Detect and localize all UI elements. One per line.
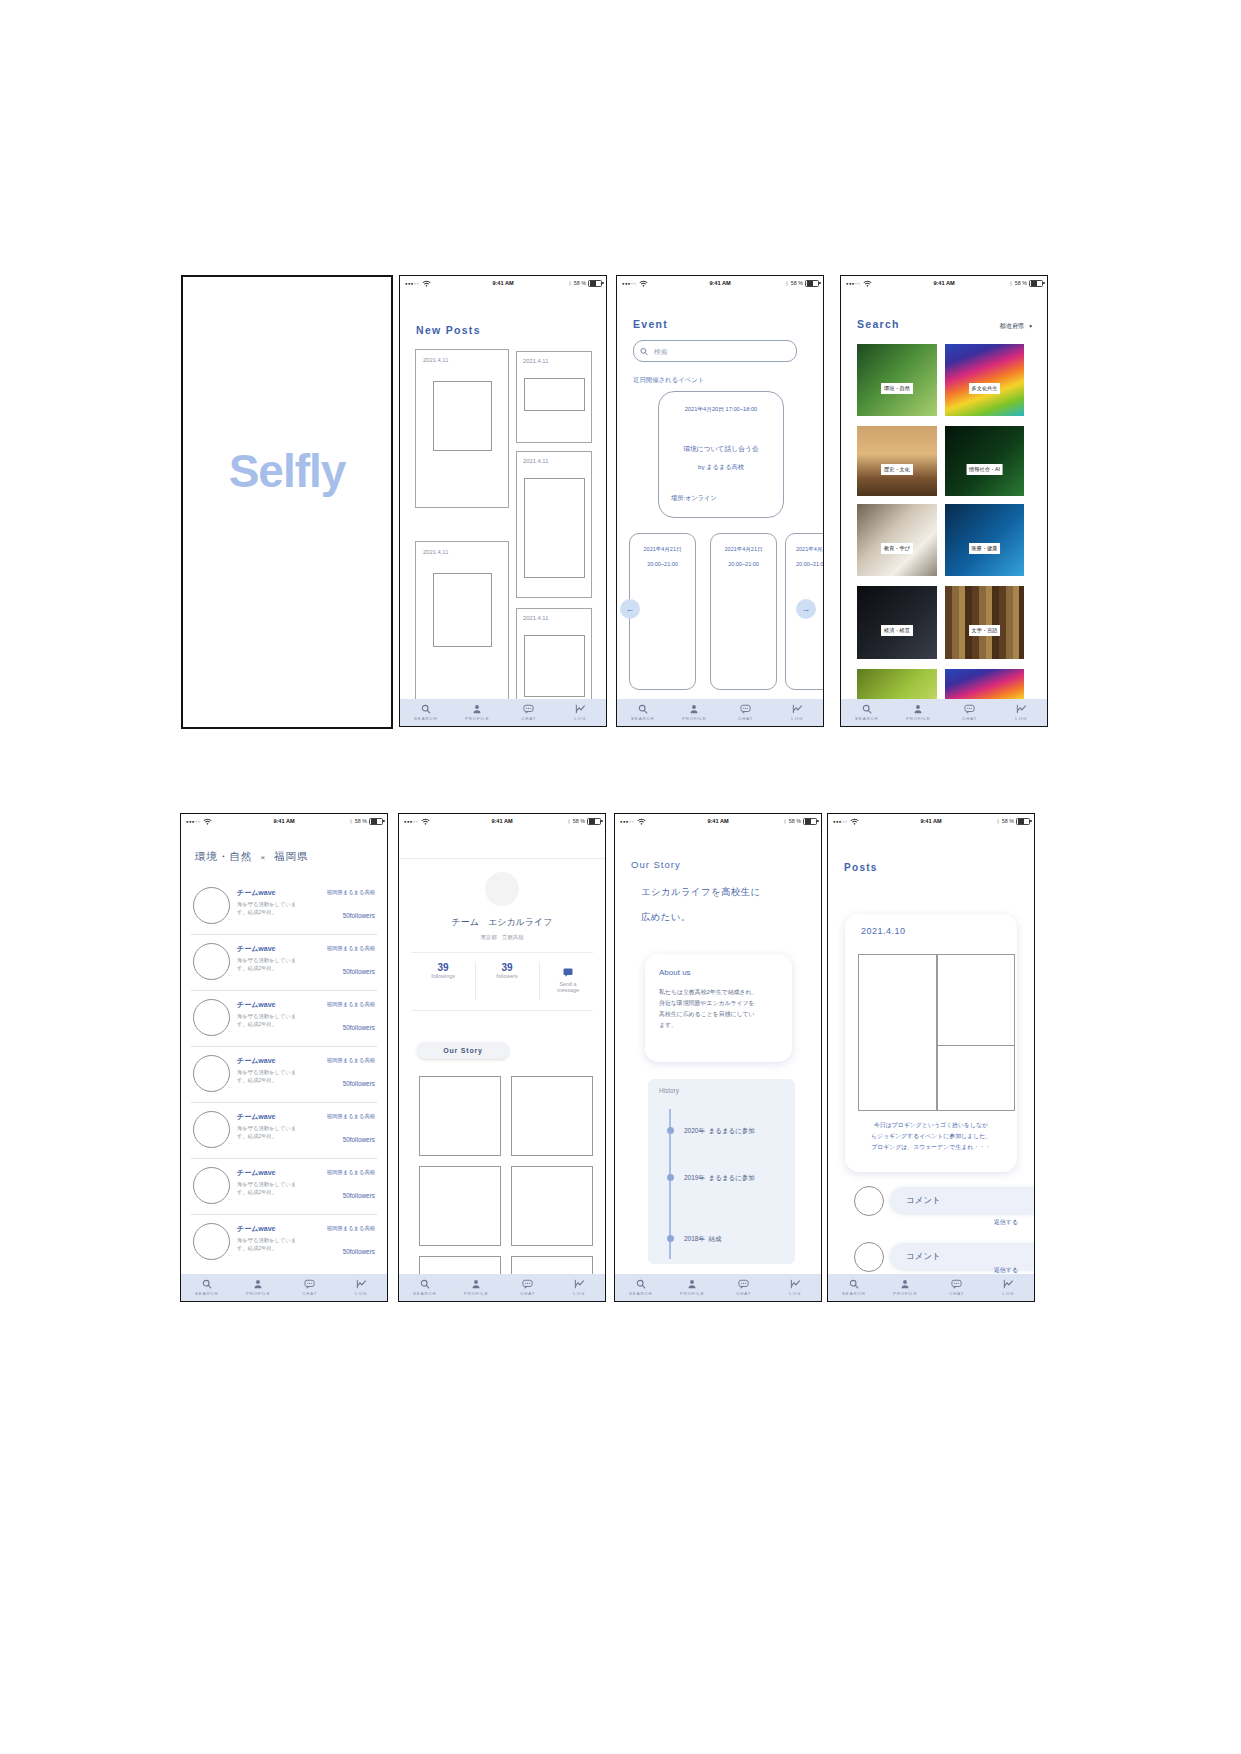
- team-name: チームwave: [237, 944, 275, 954]
- divider: [399, 858, 605, 859]
- page-title: New Posts: [416, 324, 481, 336]
- nav-chat[interactable]: CHAT: [944, 699, 996, 726]
- cross-icon: ×: [260, 853, 266, 862]
- about-title: About us: [659, 968, 691, 977]
- team-desc: 海を守る活動をしています。結成2年目。: [237, 1237, 296, 1253]
- reply-link[interactable]: 返信する: [994, 1218, 1018, 1227]
- event-time: 20:00~21:00: [796, 561, 824, 567]
- phone-profile: ●●●○○ 9:41 AM ᛒ58 % チーム エシカルライフ 東京都 立教高校…: [398, 813, 606, 1302]
- battery-indicator: ᛒ58 %: [349, 818, 383, 826]
- mockup-sheet: Selfly ●●●○○ 9:41 AM ᛒ58 % New Posts 202…: [0, 0, 1241, 1754]
- wifi-icon: [639, 280, 648, 287]
- post-card[interactable]: 2021.4.11: [516, 351, 592, 443]
- nav-chat[interactable]: CHAT: [720, 699, 772, 726]
- next-arrow-button[interactable]: →: [796, 599, 816, 619]
- followers-stat[interactable]: 39 followers: [477, 962, 537, 979]
- wifi-icon: [637, 818, 646, 825]
- nav-chat[interactable]: CHAT: [284, 1274, 336, 1301]
- bluetooth-icon: ᛒ: [349, 818, 352, 824]
- post-image-placeholder: [937, 954, 1015, 1047]
- team-list-item[interactable]: チームwave 海を守る活動をしています。結成2年目。 福岡県まるまる高校 50…: [191, 1158, 377, 1215]
- search-icon: [849, 1279, 859, 1289]
- team-school: 福岡県まるまる高校: [327, 1113, 375, 1120]
- person-icon: [913, 704, 923, 714]
- nav-chat[interactable]: CHAT: [502, 1274, 554, 1301]
- battery-indicator: ᛒ58 %: [996, 818, 1030, 826]
- chat-icon: [523, 704, 534, 714]
- history-entry: 2019年 まるまるに参加: [684, 1174, 755, 1183]
- team-avatar: [193, 1111, 230, 1148]
- battery-icon: [805, 280, 819, 288]
- battery-icon: [1016, 818, 1030, 826]
- story-post-placeholder[interactable]: [419, 1076, 501, 1156]
- category-tile[interactable]: 教育・学び: [857, 504, 937, 576]
- post-date: 2021.4.11: [523, 358, 548, 364]
- page-title: 環境・自然 × 福岡県: [195, 850, 309, 864]
- category-tile[interactable]: 情報社会・AI: [945, 426, 1024, 496]
- category-tile[interactable]: 経済・経営: [857, 586, 937, 659]
- chat-icon: [522, 1279, 533, 1289]
- team-avatar: [193, 999, 230, 1036]
- category-label: 教育・学び: [881, 543, 913, 554]
- post-image-placeholder: [937, 1045, 1015, 1111]
- team-desc: 海を守る活動をしています。結成2年目。: [237, 1125, 296, 1141]
- category-label: 環境・自然: [881, 383, 913, 394]
- search-icon: [421, 704, 431, 714]
- event-host: by まるまる高校: [659, 463, 783, 472]
- about-body: 私たちは立教高校2年生で結成され、 身近な環境問題やエシカルライフを 高校生に広…: [659, 987, 757, 1031]
- bottom-nav: SEARCH PROFILE CHAT LOG: [181, 1274, 387, 1301]
- status-bar: ●●●○○ 9:41 AM ᛒ58 %: [400, 276, 606, 292]
- clock: 9:41 AM: [709, 280, 730, 286]
- team-school: 福岡県まるまる高校: [327, 1169, 375, 1176]
- post-card[interactable]: 2021.4.11: [516, 451, 592, 598]
- history-entry: 2020年 まるまるに参加: [684, 1127, 755, 1136]
- profile-avatar: [485, 872, 519, 906]
- category-label: 情報社会・AI: [966, 464, 1003, 475]
- history-entry: 2018年 結成: [684, 1235, 722, 1244]
- signal-indicator: ●●●○○: [404, 818, 430, 825]
- team-list-item[interactable]: チームwave 海を守る活動をしています。結成2年目。 福岡県まるまる高校 50…: [191, 1046, 377, 1103]
- search-icon: [420, 1279, 430, 1289]
- chat-icon: [964, 704, 975, 714]
- team-list-item[interactable]: チームwave 海を守る活動をしています。結成2年目。 福岡県まるまる高校 50…: [191, 878, 377, 935]
- chart-icon: [1003, 1279, 1014, 1289]
- status-bar: ●●●○○ 9:41 AM ᛒ58 %: [617, 276, 823, 292]
- comment-field[interactable]: [904, 1250, 1032, 1262]
- team-list-item[interactable]: チームwave 海を守る活動をしています。結成2年目。 福岡県まるまる高校 50…: [191, 1102, 377, 1159]
- section-label: 近日開催されるイベント: [633, 376, 704, 385]
- comment-field[interactable]: [904, 1194, 1032, 1206]
- category-label: 医療・健康: [969, 543, 1001, 554]
- nav-log[interactable]: LOG: [996, 699, 1048, 726]
- post-image-placeholder: [524, 378, 585, 411]
- category-tile[interactable]: 医療・健康: [945, 504, 1024, 576]
- team-followers: 50followers: [343, 1080, 375, 1087]
- prefecture-filter[interactable]: 都道府県 ▼: [1000, 322, 1034, 331]
- history-title: History: [659, 1087, 679, 1094]
- team-avatar: [193, 1167, 230, 1204]
- bluetooth-icon: ᛒ: [1009, 280, 1012, 286]
- search-icon: [636, 1279, 646, 1289]
- team-name: チームwave: [237, 1168, 275, 1178]
- nav-profile[interactable]: PROFILE: [669, 699, 721, 726]
- bottom-nav: SEARCH PROFILE CHAT LOG: [399, 1274, 605, 1301]
- nav-search[interactable]: SEARCH: [400, 699, 452, 726]
- divider: [411, 1010, 593, 1011]
- nav-profile[interactable]: PROFILE: [451, 1274, 503, 1301]
- team-school: 福岡県まるまる高校: [327, 889, 375, 896]
- team-desc: 海を守る活動をしています。結成2年目。: [237, 1069, 296, 1085]
- event-date: 2021年4月21日: [630, 546, 695, 553]
- nav-profile[interactable]: PROFILE: [233, 1274, 285, 1301]
- post-image-placeholder: [433, 381, 492, 451]
- team-avatar: [193, 1055, 230, 1092]
- post-card[interactable]: 2021.4.11: [415, 349, 509, 508]
- chart-icon: [356, 1279, 367, 1289]
- team-followers: 50followers: [343, 1192, 375, 1199]
- battery-icon: [588, 280, 602, 288]
- chart-icon: [575, 704, 586, 714]
- status-bar: ●●●○○ 9:41 AM ᛒ58 %: [399, 814, 605, 830]
- status-bar: ●●●○○ 9:41 AM ᛒ58 %: [181, 814, 387, 830]
- nav-profile[interactable]: PROFILE: [452, 699, 504, 726]
- event-date: 2021年4月21日: [711, 546, 776, 553]
- battery-indicator: ᛒ58 %: [568, 280, 602, 288]
- search-icon: [202, 1279, 212, 1289]
- phone-team-list: ●●●○○ 9:41 AM ᛒ58 % 環境・自然 × 福岡県 チームwave …: [180, 813, 388, 1302]
- post-card[interactable]: 2021.4.11: [516, 608, 592, 701]
- headline-line2: 広めたい。: [641, 911, 691, 924]
- team-name: チームwave: [237, 1000, 275, 1010]
- nav-profile[interactable]: PROFILE: [880, 1274, 932, 1301]
- nav-chat[interactable]: CHAT: [503, 699, 555, 726]
- nav-search[interactable]: SEARCH: [399, 1274, 451, 1301]
- team-desc: 海を守る活動をしています。結成2年目。: [237, 957, 296, 973]
- history-card: History 2020年 まるまるに参加 2019年 まるまるに参加 2018…: [648, 1079, 795, 1264]
- category-label: 多文化共生: [969, 383, 1001, 394]
- nav-search[interactable]: SEARCH: [828, 1274, 880, 1301]
- signal-indicator: ●●●○○: [186, 818, 212, 825]
- wifi-icon: [422, 280, 431, 287]
- upcoming-event-card[interactable]: 2021年4月21日 20:00~21:00: [710, 533, 777, 690]
- team-school: 東京都 立教高校: [399, 934, 605, 941]
- team-avatar: [193, 943, 230, 980]
- signal-indicator: ●●●○○: [622, 280, 648, 287]
- chat-icon: [304, 1279, 315, 1289]
- chat-icon: [951, 1279, 962, 1289]
- timeline-dot: [667, 1174, 674, 1181]
- search-input[interactable]: [652, 347, 790, 356]
- bottom-nav: SEARCH PROFILE CHAT LOG: [617, 699, 823, 726]
- category-tile[interactable]: 歴史・文化: [857, 426, 937, 496]
- post-date: 2021.4.10: [861, 926, 906, 936]
- app-logo: Selfly: [183, 444, 391, 498]
- post-image-placeholder: [858, 954, 937, 1111]
- prefecture-name: 福岡県: [274, 850, 309, 862]
- person-icon: [687, 1279, 697, 1289]
- signal-indicator: ●●●○○: [846, 280, 872, 287]
- story-post-placeholder[interactable]: [419, 1166, 501, 1246]
- category-tile[interactable]: 文学・言語: [945, 586, 1024, 659]
- bluetooth-icon: ᛒ: [996, 818, 999, 824]
- team-name: チームwave: [237, 1224, 275, 1234]
- battery-indicator: ᛒ58 %: [567, 818, 601, 826]
- story-post-placeholder[interactable]: [511, 1076, 593, 1156]
- chat-icon: [738, 1279, 749, 1289]
- bluetooth-icon: ᛒ: [567, 818, 570, 824]
- battery-icon: [587, 818, 601, 826]
- team-name: チームwave: [237, 1112, 275, 1122]
- about-card: About us 私たちは立教高校2年生で結成され、 身近な環境問題やエシカルラ…: [645, 954, 792, 1062]
- nav-log[interactable]: LOG: [772, 699, 824, 726]
- team-followers: 50followers: [343, 1024, 375, 1031]
- event-time: 20:00~21:00: [630, 561, 695, 567]
- clock: 9:41 AM: [492, 280, 513, 286]
- nav-search[interactable]: SEARCH: [181, 1274, 233, 1301]
- nav-search[interactable]: SEARCH: [615, 1274, 667, 1301]
- battery-indicator: ᛒ58 %: [783, 818, 817, 826]
- category-tile[interactable]: 多文化共生: [945, 344, 1024, 416]
- page-title: Search: [857, 318, 900, 330]
- message-icon: [563, 968, 573, 977]
- clock: 9:41 AM: [273, 818, 294, 824]
- team-list-item[interactable]: チームwave 海を守る活動をしています。結成2年目。 福岡県まるまる高校 50…: [191, 934, 377, 991]
- clock: 9:41 AM: [491, 818, 512, 824]
- divider: [411, 952, 593, 953]
- post-image-placeholder: [433, 573, 492, 647]
- post-date: 2021.4.11: [423, 549, 448, 555]
- team-followers: 50followers: [343, 1248, 375, 1255]
- person-icon: [689, 704, 699, 714]
- status-bar: ●●●○○ 9:41 AM ᛒ58 %: [841, 276, 1047, 292]
- story-post-placeholder[interactable]: [511, 1166, 593, 1246]
- team-name: チームwave: [237, 888, 275, 898]
- event-search-field[interactable]: [633, 340, 797, 362]
- left-arrow-icon: ←: [626, 604, 635, 614]
- team-avatar: [193, 1223, 230, 1260]
- search-icon: [862, 704, 872, 714]
- battery-icon: [369, 818, 383, 826]
- battery-icon: [1029, 280, 1043, 288]
- team-name: チームwave: [237, 1056, 275, 1066]
- post-date: 2021.4.11: [423, 357, 448, 363]
- team-school: 福岡県まるまる高校: [327, 1225, 375, 1232]
- status-bar: ●●●○○ 9:41 AM ᛒ58 %: [828, 814, 1034, 830]
- person-icon: [471, 1279, 481, 1289]
- signal-indicator: ●●●○○: [405, 280, 431, 287]
- phone-our-story: ●●●○○ 9:41 AM ᛒ58 % Our Story エシカルライフを高校…: [614, 813, 822, 1302]
- nav-log[interactable]: LOG: [336, 1274, 388, 1301]
- nav-chat[interactable]: CHAT: [931, 1274, 983, 1301]
- team-list-item[interactable]: チームwave 海を守る活動をしています。結成2年目。 福岡県まるまる高校 50…: [191, 1214, 377, 1270]
- headline-line1: エシカルライフを高校生に: [641, 886, 761, 899]
- nav-search[interactable]: SEARCH: [841, 699, 893, 726]
- signal-indicator: ●●●○○: [620, 818, 646, 825]
- bottom-nav: SEARCH PROFILE CHAT LOG: [615, 1274, 821, 1301]
- phone-posts: ●●●○○ 9:41 AM ᛒ58 % Posts 2021.4.10 今日はプ…: [827, 813, 1035, 1302]
- category-tile[interactable]: 環境・自然: [857, 344, 937, 416]
- divider: [539, 962, 540, 1000]
- team-desc: 海を守る活動をしています。結成2年目。: [237, 1181, 296, 1197]
- post-body: 今日はプロギングというゴミ拾いをしなが らジョギングするイベントに参加しました。…: [851, 1120, 1011, 1153]
- person-icon: [253, 1279, 263, 1289]
- team-followers: 50followers: [343, 968, 375, 975]
- battery-indicator: ᛒ58 %: [785, 280, 819, 288]
- wifi-icon: [863, 280, 872, 287]
- nav-profile[interactable]: PROFILE: [893, 699, 945, 726]
- comment-input[interactable]: [890, 1187, 1035, 1213]
- bottom-nav: SEARCH PROFILE CHAT LOG: [400, 699, 606, 726]
- phone-search: ●●●○○ 9:41 AM ᛒ58 % Search 都道府県 ▼ 環境・自然 …: [840, 275, 1048, 727]
- chart-icon: [790, 1279, 801, 1289]
- bluetooth-icon: ᛒ: [785, 280, 788, 286]
- post-detail-card[interactable]: 2021.4.10 今日はプロギングというゴミ拾いをしなが らジョギングするイベ…: [845, 914, 1017, 1172]
- bluetooth-icon: ᛒ: [568, 280, 571, 286]
- bottom-nav: SEARCH PROFILE CHAT LOG: [841, 699, 1047, 726]
- event-datetime: 2021年4月20日 17:00~18:00: [659, 406, 783, 414]
- event-place: 場所:オンライン: [671, 494, 717, 503]
- bottom-nav: SEARCH PROFILE CHAT LOG: [828, 1274, 1034, 1301]
- team-school: 福岡県まるまる高校: [327, 1001, 375, 1008]
- chart-icon: [574, 1279, 585, 1289]
- our-story-button[interactable]: Our Story: [417, 1042, 509, 1059]
- person-icon: [472, 704, 482, 714]
- right-arrow-icon: →: [802, 604, 811, 614]
- category-label: 歴史・文化: [881, 464, 913, 475]
- page-title: Our Story: [631, 859, 681, 870]
- person-icon: [900, 1279, 910, 1289]
- post-card[interactable]: 2021.4.11: [415, 541, 509, 701]
- event-date: 2021年4月21日: [796, 546, 824, 553]
- wifi-icon: [203, 818, 212, 825]
- event-time: 20:00~21:00: [711, 561, 776, 567]
- filter-label: 都道府県: [1000, 322, 1025, 331]
- timeline-dot: [667, 1235, 674, 1242]
- search-icon: [640, 347, 648, 356]
- nav-search[interactable]: SEARCH: [617, 699, 669, 726]
- chart-icon: [792, 704, 803, 714]
- followings-stat[interactable]: 39 followings: [413, 962, 473, 979]
- reply-link[interactable]: 返信する: [994, 1266, 1018, 1275]
- dropdown-arrow-icon: ▼: [1028, 324, 1033, 329]
- comment-avatar: [854, 1186, 884, 1216]
- comment-avatar: [854, 1242, 884, 1272]
- post-date: 2021.4.11: [523, 458, 548, 464]
- team-followers: 50followers: [343, 1136, 375, 1143]
- divider: [475, 962, 476, 1000]
- nav-chat[interactable]: CHAT: [718, 1274, 770, 1301]
- nav-log[interactable]: LOG: [555, 699, 607, 726]
- nav-log[interactable]: LOG: [983, 1274, 1035, 1301]
- chart-icon: [1016, 704, 1027, 714]
- post-date: 2021.4.11: [523, 615, 548, 621]
- team-list-item[interactable]: チームwave 海を守る活動をしています。結成2年目。 福岡県まるまる高校 50…: [191, 990, 377, 1047]
- clock: 9:41 AM: [920, 818, 941, 824]
- team-followers: 50followers: [343, 912, 375, 919]
- team-school: 福岡県まるまる高校: [327, 1057, 375, 1064]
- phone-splash: Selfly: [181, 275, 393, 729]
- search-icon: [638, 704, 648, 714]
- wifi-icon: [850, 818, 859, 825]
- bluetooth-icon: ᛒ: [783, 818, 786, 824]
- post-image-placeholder: [524, 635, 585, 697]
- featured-event-card[interactable]: 2021年4月20日 17:00~18:00 環境について話し合う会 by まる…: [658, 391, 784, 518]
- phone-event: ●●●○○ 9:41 AM ᛒ58 % Event 近日開催されるイベント 20…: [616, 275, 824, 727]
- team-desc: 海を守る活動をしています。結成2年目。: [237, 1013, 296, 1029]
- signal-indicator: ●●●○○: [833, 818, 859, 825]
- status-bar: ●●●○○ 9:41 AM ᛒ58 %: [615, 814, 821, 830]
- nav-profile[interactable]: PROFILE: [667, 1274, 719, 1301]
- category-label: 文学・言語: [969, 625, 1001, 636]
- category-name: 環境・自然: [195, 850, 253, 862]
- prev-arrow-button[interactable]: ←: [620, 599, 640, 619]
- page-title: Event: [633, 318, 668, 330]
- chat-icon: [740, 704, 751, 714]
- timeline-dot: [667, 1127, 674, 1134]
- nav-log[interactable]: LOG: [770, 1274, 822, 1301]
- clock: 9:41 AM: [933, 280, 954, 286]
- team-school: 福岡県まるまる高校: [327, 945, 375, 952]
- team-avatar: [193, 887, 230, 924]
- wifi-icon: [421, 818, 430, 825]
- event-name: 環境について話し合う会: [659, 444, 783, 454]
- post-image-placeholder: [524, 478, 585, 578]
- clock: 9:41 AM: [707, 818, 728, 824]
- battery-indicator: ᛒ58 %: [1009, 280, 1043, 288]
- phone-new-posts: ●●●○○ 9:41 AM ᛒ58 % New Posts 2021.4.11 …: [399, 275, 607, 727]
- nav-log[interactable]: LOG: [554, 1274, 606, 1301]
- page-title: Posts: [844, 862, 878, 873]
- team-name: チーム エシカルライフ: [399, 916, 605, 929]
- battery-icon: [803, 818, 817, 826]
- category-label: 経済・経営: [881, 625, 913, 636]
- team-desc: 海を守る活動をしています。結成2年目。: [237, 901, 296, 917]
- send-message-button[interactable]: Send a message: [541, 963, 595, 993]
